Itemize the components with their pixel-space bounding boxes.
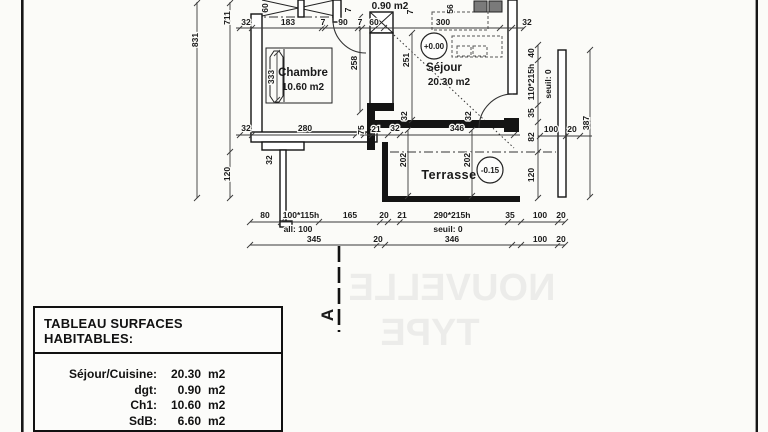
row-label: SdB: — [35, 414, 157, 430]
svg-text:120: 120 — [526, 168, 536, 182]
surfaces-table-title: TABLEAU SURFACES HABITABLES: — [35, 308, 281, 354]
terrasse-bottom-wall — [382, 196, 520, 202]
svg-text:-0.15: -0.15 — [481, 166, 500, 175]
sejour-label: Séjour — [426, 62, 462, 74]
svg-text:56: 56 — [445, 4, 455, 14]
svg-text:seuil: 0: seuil: 0 — [433, 224, 463, 234]
row-value: 6.60 — [157, 414, 201, 430]
sink-unit — [474, 1, 487, 12]
row-value: 10.60 — [157, 398, 201, 414]
level-marker-ground: +0.00 — [421, 33, 447, 59]
row-unit: m2 — [201, 367, 248, 383]
svg-text:32: 32 — [241, 17, 251, 27]
svg-text:21: 21 — [371, 124, 381, 134]
bleed-through-text: NOUVELLE TYPE — [349, 267, 556, 354]
svg-text:300: 300 — [436, 17, 450, 27]
chambre-label: Chambre — [278, 67, 328, 79]
terrasse-right-wall — [558, 50, 566, 197]
svg-text:90: 90 — [338, 17, 348, 27]
table-row: Séjour/Cuisine: 20.30 m2 — [35, 367, 281, 383]
svg-text:346: 346 — [450, 123, 464, 133]
svg-text:20: 20 — [567, 124, 577, 134]
svg-text:831: 831 — [190, 33, 200, 47]
svg-text:NOUVELLE: NOUVELLE — [349, 267, 556, 309]
svg-text:21: 21 — [397, 210, 407, 220]
svg-text:32: 32 — [264, 155, 274, 165]
svg-text:280: 280 — [298, 123, 312, 133]
svg-text:251: 251 — [401, 53, 411, 67]
row-unit: m2 — [201, 398, 248, 414]
svg-text:345: 345 — [307, 234, 321, 244]
svg-text:258: 258 — [349, 56, 359, 70]
svg-text:20: 20 — [556, 234, 566, 244]
table-row: SdB: 6.60 m2 — [35, 414, 281, 430]
svg-text:7: 7 — [358, 17, 363, 27]
svg-text:100: 100 — [533, 234, 547, 244]
terrasse-label: Terrasse — [421, 168, 476, 182]
surfaces-table-rows: Séjour/Cuisine: 20.30 m2 dgt: 0.90 m2 Ch… — [35, 367, 281, 429]
row-unit: m2 — [201, 383, 248, 399]
svg-text:100: 100 — [544, 124, 558, 134]
svg-text:346: 346 — [445, 234, 459, 244]
chambre-area: 10.60 m2 — [282, 82, 325, 93]
row-unit: m2 — [201, 414, 248, 430]
svg-text:80: 80 — [260, 210, 270, 220]
svg-text:202: 202 — [462, 153, 472, 167]
section-label: A — [318, 309, 337, 321]
svg-text:183: 183 — [281, 17, 295, 27]
svg-text:32: 32 — [463, 111, 473, 121]
svg-text:32: 32 — [390, 123, 400, 133]
sejour-area: 20.30 m2 — [428, 77, 471, 88]
svg-text:+0.00: +0.00 — [424, 42, 445, 51]
svg-text:40: 40 — [526, 48, 536, 58]
page-border-right — [756, 0, 758, 432]
svg-text:100*115h: 100*115h — [283, 210, 319, 220]
table-row: Ch1: 10.60 m2 — [35, 398, 281, 414]
svg-text:290*215h: 290*215h — [434, 210, 471, 220]
svg-text:110*215h: 110*215h — [526, 64, 536, 100]
svg-text:60: 60 — [369, 17, 379, 27]
terrasse-left-wall — [382, 142, 388, 202]
svg-text:20: 20 — [379, 210, 389, 220]
row-value: 0.90 — [157, 383, 201, 399]
svg-text:333: 333 — [266, 70, 276, 84]
svg-text:32: 32 — [241, 123, 251, 133]
svg-text:all: 100: all: 100 — [284, 224, 313, 234]
dgt-area: 0.90 m2 — [372, 1, 409, 12]
row-label: Séjour/Cuisine: — [35, 367, 157, 383]
page-border-left — [21, 0, 24, 432]
svg-text:711: 711 — [222, 11, 232, 25]
table-row: dgt: 0.90 m2 — [35, 383, 281, 399]
svg-text:35: 35 — [526, 108, 536, 118]
svg-text:202: 202 — [398, 153, 408, 167]
svg-text:60: 60 — [260, 3, 270, 13]
svg-text:387: 387 — [581, 116, 591, 130]
svg-text:32: 32 — [522, 17, 532, 27]
scanned-floor-plan-page: { "plan": { "rooms": { "chambre": {"name… — [0, 0, 768, 432]
surfaces-table: TABLEAU SURFACES HABITABLES: Séjour/Cuis… — [33, 306, 283, 432]
svg-text:120: 120 — [222, 167, 232, 181]
svg-text:20: 20 — [556, 210, 566, 220]
level-marker-terrace: -0.15 — [477, 157, 503, 183]
svg-text:82: 82 — [526, 132, 536, 142]
svg-text:75: 75 — [356, 125, 366, 135]
svg-text:32: 32 — [399, 111, 409, 121]
svg-text:7: 7 — [405, 9, 415, 14]
svg-text:TYPE: TYPE — [380, 312, 479, 354]
svg-text:165: 165 — [343, 210, 357, 220]
svg-text:35: 35 — [505, 210, 515, 220]
row-value: 20.30 — [157, 367, 201, 383]
svg-text:seuil: 0: seuil: 0 — [543, 69, 553, 99]
svg-text:100: 100 — [533, 210, 547, 220]
svg-text:7: 7 — [343, 7, 353, 12]
svg-text:20: 20 — [373, 234, 383, 244]
row-label: Ch1: — [35, 398, 157, 414]
svg-text:7: 7 — [321, 17, 326, 27]
duct — [370, 33, 393, 105]
row-label: dgt: — [35, 383, 157, 399]
hob-unit — [489, 1, 502, 12]
